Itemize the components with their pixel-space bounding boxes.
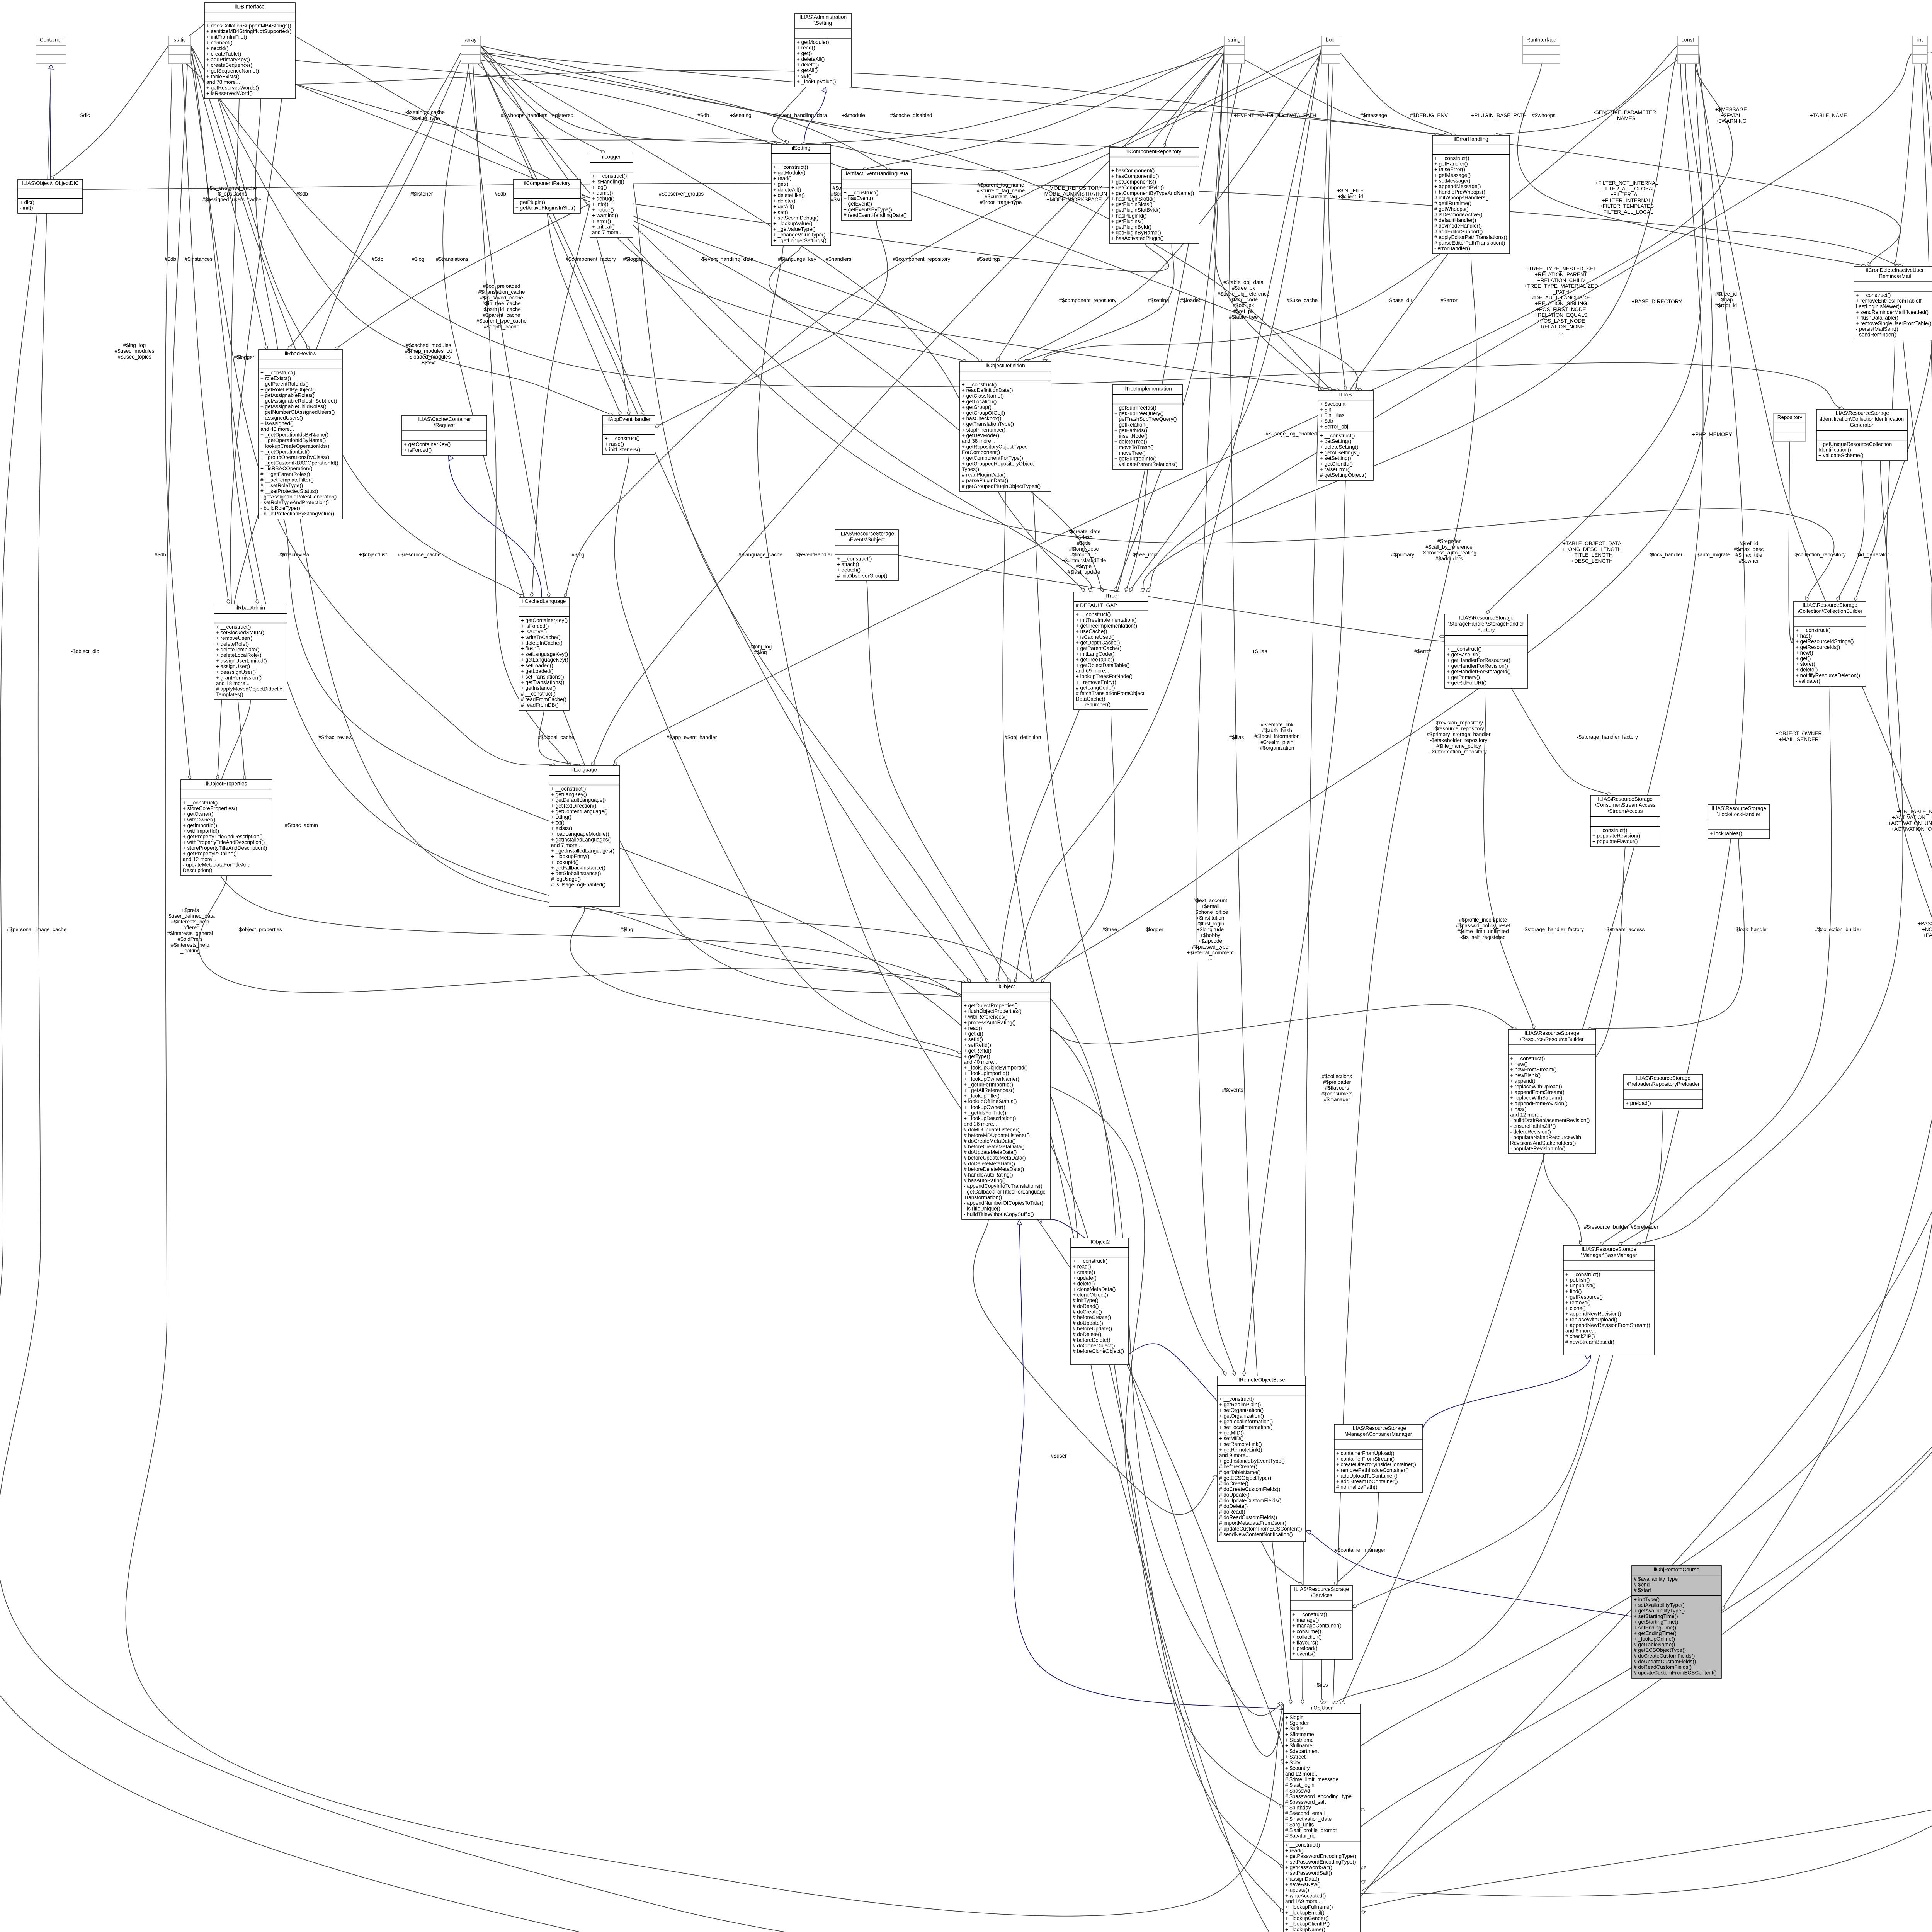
svg-text:#$parent_cache: #$parent_cache — [483, 312, 520, 318]
svg-text:+OBJECT_OWNER: +OBJECT_OWNER — [1776, 731, 1822, 736]
svg-text:+ getSubtreeInfo(): + getSubtreeInfo() — [1114, 456, 1156, 461]
svg-text:ilRbacAdmin: ilRbacAdmin — [236, 605, 265, 611]
svg-text:+ $ini: + $ini — [1320, 407, 1333, 413]
svg-text:+ create(): + create() — [1073, 1269, 1095, 1275]
svg-text:+ getOrganization(): + getOrganization() — [1219, 1413, 1264, 1419]
svg-text:# $avatar_rid: # $avatar_rid — [1285, 1833, 1316, 1839]
svg-text:\StreamAccess: \StreamAccess — [1608, 808, 1643, 814]
svg-text:Identification(): Identification() — [1818, 447, 1851, 453]
svg-text:+ tableExists(): + tableExists() — [206, 73, 240, 79]
svg-text:+ _lookupGender(): + _lookupGender() — [1285, 1915, 1329, 1921]
svg-text:+ isForced(): + isForced() — [404, 447, 432, 453]
svg-text:- ensurePathInZIP(): - ensurePathInZIP() — [1510, 1123, 1556, 1129]
svg-text:# doUpdateCustomFields(): # doUpdateCustomFields() — [1634, 1658, 1696, 1664]
svg-text:+ find(): + find() — [1565, 1288, 1582, 1294]
svg-text:#$language_cache: #$language_cache — [738, 552, 782, 558]
svg-text:+ setTranslations(): + setTranslations() — [521, 674, 564, 680]
svg-text:+ getGroupedRepositoryObject: + getGroupedRepositoryObject — [962, 461, 1034, 466]
svg-text:- appendCopyInfoToTranslations: - appendCopyInfoToTranslations() — [964, 1183, 1043, 1189]
svg-text:string: string — [1228, 37, 1240, 43]
svg-text:+MODE_ADMINISTRATION: +MODE_ADMINISTRATION — [1041, 191, 1107, 197]
svg-text:+ getHandler(): + getHandler() — [1434, 161, 1468, 167]
svg-text:+ getMID(): + getMID() — [1219, 1430, 1244, 1436]
svg-text:#$log: #$log — [571, 552, 584, 558]
svg-text:+ getRealmPlain(): + getRealmPlain() — [1219, 1402, 1261, 1408]
svg-text:+ _lookupFullname(): + _lookupFullname() — [1285, 1904, 1333, 1910]
svg-text:+ attach(): + attach() — [837, 561, 859, 567]
svg-text:+ __construct(): + __construct() — [551, 786, 586, 792]
svg-text:+ getImportId(): + getImportId() — [183, 822, 217, 828]
svg-text:# readFromCache(): # readFromCache() — [521, 696, 566, 702]
svg-text:#$resource_cache: #$resource_cache — [398, 552, 440, 558]
svg-text:# getECSObjectType(): # getECSObjectType() — [1219, 1475, 1271, 1481]
svg-text:+ set(): + set() — [773, 209, 788, 215]
svg-text:#$interests_help: #$interests_help — [171, 942, 209, 948]
svg-text:#$realm_plain: #$realm_plain — [1261, 739, 1294, 745]
svg-text:+ removeEntriesFromTableIf: + removeEntriesFromTableIf — [1856, 298, 1922, 304]
svg-text:+ initTreeImplementation(): + initTreeImplementation() — [1076, 617, 1136, 623]
svg-text:+ __construct(): + __construct() — [1219, 1396, 1254, 1402]
svg-text:+ deleteLike(): + deleteLike() — [773, 192, 805, 198]
svg-text:#$eventHandler: #$eventHandler — [795, 552, 832, 558]
svg-text:and 169 more...: and 169 more... — [1285, 1898, 1322, 1904]
svg-text:+$user_defined_data: +$user_defined_data — [165, 913, 215, 919]
svg-text:+ getAssignableRolesInSubtree(: + getAssignableRolesInSubtree() — [260, 398, 337, 404]
svg-text:+ moveTree(): + moveTree() — [1114, 450, 1146, 456]
svg-text:and 38 more...: and 38 more... — [962, 438, 995, 444]
svg-text:+ getPathIds(): + getPathIds() — [1114, 427, 1147, 433]
svg-text:+ getSetting(): + getSetting() — [1320, 439, 1351, 444]
svg-text:+ appendMessage(): + appendMessage() — [1434, 184, 1481, 189]
svg-text:ilObject2: ilObject2 — [1090, 1239, 1110, 1245]
svg-text:+ doesCollationSupportMB4Strin: + doesCollationSupportMB4Strings() — [206, 23, 291, 29]
svg-text:#$user: #$user — [1051, 1453, 1067, 1459]
svg-text:ilErrorHandling: ilErrorHandling — [1454, 136, 1488, 142]
svg-text:+ __construct(): + __construct() — [1796, 628, 1830, 633]
svg-text:+ getDevMode(): + getDevMode() — [962, 432, 999, 438]
svg-text:_offered: _offered — [180, 925, 199, 930]
svg-text:-$path_id_cache: -$path_id_cache — [482, 306, 521, 312]
svg-text:-$gap: -$gap — [1719, 297, 1733, 303]
svg-text:#$rbac_review: #$rbac_review — [318, 735, 352, 740]
svg-text:+ getHandlerForRevision(): + getHandlerForRevision() — [1447, 663, 1508, 669]
svg-text:+ __construct(): + __construct() — [260, 370, 295, 376]
svg-text:+ getGroup(): + getGroup() — [962, 404, 992, 410]
svg-text:+ removeSingleUserFromTable(): + removeSingleUserFromTable() — [1856, 321, 1931, 327]
svg-text:#$db: #$db — [165, 256, 176, 262]
svg-text:\Manager\ContainerManager: \Manager\ContainerManager — [1345, 1431, 1412, 1437]
svg-text:# doDeleteMetaData(): # doDeleteMetaData() — [964, 1161, 1015, 1167]
svg-text:+ update(): + update() — [1073, 1275, 1097, 1281]
svg-text:+ __construct(): + __construct() — [773, 164, 808, 170]
svg-text:+ getTextDirection(): + getTextDirection() — [551, 803, 596, 809]
svg-text:ILIAS\ResourceStorage: ILIAS\ResourceStorage — [1803, 602, 1857, 608]
svg-text:+ writeAccepted(): + writeAccepted() — [1285, 1893, 1326, 1899]
svg-text:ilDBInterface: ilDBInterface — [235, 4, 264, 10]
svg-text:# DEFAULT_GAP: # DEFAULT_GAP — [1076, 602, 1117, 608]
svg-text:+ containerFromUpload(): + containerFromUpload() — [1336, 1451, 1394, 1456]
svg-text:ReminderMail: ReminderMail — [1879, 273, 1911, 279]
svg-text:#$owner: #$owner — [1739, 558, 1759, 564]
svg-text:+ withReferences(): + withReferences() — [964, 1014, 1008, 1020]
svg-text:+ getHandlerForResource(): + getHandlerForResource() — [1447, 657, 1510, 663]
svg-text:+ getOwner(): + getOwner() — [183, 811, 213, 817]
svg-text:# beforeMDUpdateListener(): # beforeMDUpdateListener() — [964, 1133, 1030, 1138]
svg-text:#$first_login: #$first_login — [1196, 921, 1225, 927]
svg-text:-$lock_handler: -$lock_handler — [1734, 927, 1769, 932]
svg-text:Types(): Types() — [962, 466, 979, 472]
svg-text:+ newBlank(): + newBlank() — [1510, 1072, 1541, 1078]
svg-text:+ getInstance(): + getInstance() — [521, 685, 556, 691]
svg-text:+ getResourceIdStrings(): + getResourceIdStrings() — [1796, 639, 1854, 645]
svg-text:LastLoginIsNewer(): LastLoginIsNewer() — [1856, 304, 1901, 310]
svg-text:+ $account: + $account — [1320, 401, 1346, 407]
svg-text:# logUsage(): # logUsage() — [551, 876, 581, 882]
svg-text:+ getEndingTime(): + getEndingTime() — [1634, 1630, 1677, 1636]
svg-text:+ sanitizeMB4StringIfNotSuppor: + sanitizeMB4StringIfNotSupported() — [206, 29, 291, 34]
svg-text:#$create_date: #$create_date — [1067, 529, 1100, 534]
svg-text:- errorHandler(): - errorHandler() — [1434, 246, 1470, 252]
svg-text:+ _getIdsForTitle(): + _getIdsForTitle() — [964, 1110, 1006, 1116]
svg-text:-$information_repository: -$information_repository — [1430, 749, 1487, 755]
svg-text:# doUpdateCustomFields(): # doUpdateCustomFields() — [1219, 1498, 1281, 1503]
svg-text:and 9 more...: and 9 more... — [1219, 1452, 1250, 1458]
svg-text:#$container_manager: #$container_manager — [1335, 1547, 1386, 1553]
svg-text:#$events: #$events — [1222, 1087, 1243, 1093]
svg-text:+ getInstalledLanguages(): + getInstalledLanguages() — [551, 837, 612, 842]
svg-text:# beforeCloneObject(): # beforeCloneObject() — [1073, 1349, 1124, 1354]
svg-text:+ read(): + read() — [1285, 1848, 1304, 1854]
svg-text:# updateCustomFromECSContent(): # updateCustomFromECSContent() — [1634, 1670, 1717, 1676]
svg-text:ilTree: ilTree — [1104, 593, 1117, 599]
svg-text:+ getPlugins(): + getPlugins() — [1111, 218, 1144, 224]
svg-text:+ stopInheritance(): + stopInheritance() — [962, 427, 1005, 433]
svg-text:ILIAS\Administration: ILIAS\Administration — [799, 14, 847, 20]
svg-text:#$use_cache: #$use_cache — [1287, 298, 1318, 303]
svg-text:+ log(): + log() — [592, 184, 607, 190]
svg-text:# doCreateCustomFields(): # doCreateCustomFields() — [1219, 1486, 1280, 1492]
svg-text:+ _lookupValue(): + _lookupValue() — [797, 79, 836, 85]
svg-text:+ __construct(): + __construct() — [1565, 1272, 1600, 1277]
svg-text:ilLanguage: ilLanguage — [571, 767, 597, 773]
svg-text:RevisionsAndStakeholders(): RevisionsAndStakeholders() — [1510, 1140, 1576, 1146]
svg-text:+ getContentLanguage(): + getContentLanguage() — [551, 808, 608, 814]
svg-text:# __construct(): # __construct() — [521, 691, 556, 697]
svg-text:+MODE_REPOSITORY: +MODE_REPOSITORY — [1046, 185, 1102, 191]
svg-text:-$settings_cache: -$settings_cache — [405, 109, 445, 115]
svg-text:+ _lookupDescription(): + _lookupDescription() — [964, 1116, 1016, 1121]
svg-text:# getSettingObject(): # getSettingObject() — [1320, 472, 1366, 478]
svg-text:#$obj_definition: #$obj_definition — [1005, 735, 1041, 740]
svg-text:#$consumers: #$consumers — [1321, 1091, 1352, 1097]
svg-text:+ events(): + events() — [1292, 1651, 1315, 1657]
svg-text:+ cloneObject(): + cloneObject() — [1073, 1292, 1108, 1298]
svg-text:# applyEditorPathTranslations(: # applyEditorPathTranslations() — [1434, 234, 1507, 240]
svg-text:-$event_handling_data: -$event_handling_data — [700, 256, 753, 262]
svg-text:#$instances: #$instances — [185, 256, 213, 262]
svg-text:#$used_modules: #$used_modules — [115, 348, 155, 354]
svg-text:+ $street: + $street — [1285, 1754, 1306, 1760]
svg-text:Generator: Generator — [1850, 422, 1874, 428]
svg-text:-$tree_impl: -$tree_impl — [1131, 552, 1158, 558]
svg-text:#$root_trans_type: #$root_trans_type — [980, 199, 1022, 205]
svg-text:Transformation(): Transformation() — [964, 1194, 1002, 1200]
svg-text:+ store(): + store() — [1796, 661, 1815, 667]
svg-text:-$stream_access: -$stream_access — [1605, 927, 1645, 932]
svg-text:+MAIL_SENDER: +MAIL_SENDER — [1779, 736, 1818, 742]
svg-text:array: array — [465, 37, 477, 43]
svg-text:#$register: #$register — [1437, 538, 1461, 544]
svg-text:Container: Container — [40, 37, 63, 43]
svg-text:# getGroupedPluginObjectTypes(: # getGroupedPluginObjectTypes() — [962, 483, 1041, 489]
svg-text:+ getRidForURI(): + getRidForURI() — [1447, 680, 1486, 686]
svg-text:+ __construct(): + __construct() — [1292, 1612, 1327, 1617]
svg-text:-$process_auto_reating: -$process_auto_reating — [1422, 550, 1476, 556]
svg-text:#$type: #$type — [1076, 563, 1092, 569]
svg-text:+ getPasswordSalt(): + getPasswordSalt() — [1285, 1865, 1332, 1871]
svg-text:+ preload(): + preload() — [1292, 1645, 1318, 1651]
svg-text:ilObjUser: ilObjUser — [1311, 1705, 1333, 1711]
svg-text:+$WARNING: +$WARNING — [1716, 118, 1747, 124]
svg-text:+ new(): + new() — [1510, 1061, 1527, 1067]
svg-text:# beforeCreate(): # beforeCreate() — [1073, 1315, 1111, 1320]
svg-text:#$whoops: #$whoops — [1532, 112, 1556, 118]
svg-text:# doCreate(): # doCreate() — [1219, 1481, 1248, 1486]
svg-text:and 6 more...: and 6 more... — [1565, 1328, 1596, 1334]
svg-text:#$db: #$db — [372, 256, 383, 262]
svg-text:+ appendNewRevision(): + appendNewRevision() — [1565, 1311, 1621, 1317]
svg-text:+ __construct(): + __construct() — [844, 190, 878, 196]
svg-text:+ getLocation(): + getLocation() — [962, 399, 997, 405]
svg-text:ILIAS\ResourceStorage: ILIAS\ResourceStorage — [1459, 615, 1514, 621]
svg-text:+$phone_office: +$phone_office — [1192, 909, 1228, 915]
svg-text:+ getLocalInformation(): + getLocalInformation() — [1219, 1418, 1273, 1424]
svg-text:#$remote_link: #$remote_link — [1261, 722, 1294, 728]
svg-text:ilObjRemoteCourse: ilObjRemoteCourse — [1654, 1567, 1699, 1573]
svg-text:+ critical(): + critical() — [592, 224, 615, 230]
svg-text:+ getUniqueResourceCollection: + getUniqueResourceCollection — [1818, 441, 1892, 447]
svg-text:and 12 more...: and 12 more... — [1510, 1112, 1544, 1118]
svg-text:+ _lookupValue(): + _lookupValue() — [773, 221, 812, 226]
svg-text:+ hasEvent(): + hasEvent() — [844, 196, 873, 201]
svg-text:+ _lookupTitle(): + _lookupTitle() — [964, 1093, 1000, 1099]
svg-text:+ nextId(): + nextId() — [206, 45, 228, 51]
svg-text:ILIAS\Cache\Container: ILIAS\Cache\Container — [418, 417, 471, 422]
svg-text:+ $utitle: + $utitle — [1285, 1726, 1304, 1731]
svg-text:+ __construct(): + __construct() — [1076, 612, 1111, 617]
svg-text:+ get(): + get() — [797, 51, 812, 56]
svg-text:+ delete(): + delete() — [773, 198, 795, 204]
svg-text:#$log: #$log — [412, 256, 424, 262]
svg-text:+ getClientId(): + getClientId() — [1320, 461, 1353, 467]
svg-text:- buildProtectionByStringValue: - buildProtectionByStringValue() — [260, 511, 334, 517]
svg-text:# $password_encoding_type: # $password_encoding_type — [1285, 1793, 1352, 1799]
svg-text:+$client_id: +$client_id — [1338, 194, 1363, 199]
svg-text:+ has(): + has() — [1510, 1106, 1526, 1112]
svg-text:# beforeCreateMetaData(): # beforeCreateMetaData() — [964, 1144, 1025, 1150]
svg-text:# getLangCode(): # getLangCode() — [1076, 685, 1115, 690]
svg-text:# doUpdateMetaData(): # doUpdateMetaData() — [964, 1150, 1017, 1155]
svg-text:+ setId(): + setId() — [964, 1037, 983, 1043]
svg-text:+ setRemoteLink(): + setRemoteLink() — [1219, 1441, 1262, 1447]
svg-text:+ getLanguageKey(): + getLanguageKey() — [521, 657, 568, 663]
svg-text:+FILTER_NOT_INTERNAL: +FILTER_NOT_INTERNAL — [1595, 180, 1658, 186]
svg-text:+ preload(): + preload() — [1626, 1100, 1651, 1106]
svg-text:+ getPlugin(): + getPlugin() — [515, 199, 545, 205]
svg-text:#$root_id: #$root_id — [1715, 303, 1737, 308]
svg-text:+ assignData(): + assignData() — [1285, 1876, 1319, 1882]
svg-text:+ populateRevision(): + populateRevision() — [1592, 833, 1640, 839]
svg-text:+ delete(): + delete() — [1796, 667, 1818, 673]
svg-text:+ _getIdForImportId(): + _getIdForImportId() — [964, 1082, 1013, 1087]
svg-text:#$interests_help: #$interests_help — [171, 919, 209, 925]
svg-text:+TREE_TYPE_MATERIALIZED: +TREE_TYPE_MATERIALIZED — [1524, 283, 1598, 289]
svg-text:+ addStreamToContainer(): + addStreamToContainer() — [1336, 1479, 1398, 1485]
svg-text:+ read(): + read() — [964, 1025, 982, 1031]
svg-text:-$lock_handler: -$lock_handler — [1648, 552, 1683, 558]
svg-text:+ getReservedWords(): + getReservedWords() — [206, 85, 259, 91]
svg-text:#$profile_incomplete: #$profile_incomplete — [1459, 917, 1507, 923]
svg-text:#$app_event_handler: #$app_event_handler — [667, 735, 717, 740]
svg-text:+ get(): + get() — [1796, 656, 1811, 662]
svg-text:+ setLoaded(): + setLoaded() — [521, 663, 553, 668]
svg-text:- setRoleTypeAndProtection(): - setRoleTypeAndProtection() — [260, 500, 329, 505]
svg-text:#$collections: #$collections — [1322, 1073, 1352, 1079]
svg-text:+$FATAL: +$FATAL — [1721, 112, 1742, 118]
svg-text:+ getParentCache(): + getParentCache() — [1076, 645, 1121, 651]
svg-text:+RELATION_EQUALS: +RELATION_EQUALS — [1535, 312, 1588, 318]
svg-text:+ __construct(): + __construct() — [1592, 827, 1627, 833]
svg-text:# __setRoleType(): # __setRoleType() — [260, 483, 303, 488]
svg-text:+ _lookupOwner(): + _lookupOwner() — [964, 1104, 1005, 1110]
svg-text:+ _lookupName(): + _lookupName() — [1285, 1927, 1325, 1932]
svg-text:#$in_tree_cache: #$in_tree_cache — [482, 301, 521, 306]
svg-text:#$component_repository: #$component_repository — [1059, 298, 1117, 303]
svg-text:+ $login: + $login — [1285, 1714, 1304, 1720]
svg-text:- init(): - init() — [20, 205, 33, 211]
svg-text:\Manager\BaseManager: \Manager\BaseManager — [1581, 1252, 1637, 1258]
svg-text:+BASE_DIRECTORY: +BASE_DIRECTORY — [1632, 299, 1682, 304]
svg-text:#$observer_groups: #$observer_groups — [659, 191, 704, 197]
svg-text:+$setting: +$setting — [730, 112, 751, 118]
svg-text:+ createSequence(): + createSequence() — [206, 62, 252, 68]
svg-text:# addEditorSupport(): # addEditorSupport() — [1434, 229, 1483, 235]
svg-text:#$message: #$message — [1360, 112, 1387, 118]
svg-text:#$flavours: #$flavours — [1325, 1085, 1349, 1091]
svg-text:+ replaceWithUpload(): + replaceWithUpload() — [1510, 1084, 1562, 1090]
svg-text:+ hasActivatedPlugin(): + hasActivatedPlugin() — [1111, 235, 1163, 241]
svg-text:+ cloneMetaData(): + cloneMetaData() — [1073, 1286, 1116, 1292]
svg-text:+ _getAllReferences(): + _getAllReferences() — [964, 1087, 1014, 1093]
svg-text:and 43 more...: and 43 more... — [260, 426, 294, 432]
svg-text:#$rbac_admin: #$rbac_admin — [285, 822, 318, 828]
svg-text:+TREE_TYPE_NESTED_SET: +TREE_TYPE_NESTED_SET — [1526, 266, 1597, 272]
svg-text:#$rbacreview: #$rbacreview — [278, 552, 310, 558]
svg-text:\Resource\ResourceBuilder: \Resource\ResourceBuilder — [1520, 1036, 1584, 1042]
svg-text:+ getAssignableChildRoles(): + getAssignableChildRoles() — [260, 404, 327, 410]
svg-text:+ txtlng(): + txtlng() — [551, 814, 571, 820]
svg-text:+ _getOperationIdsByName(): + _getOperationIdsByName() — [260, 432, 328, 438]
svg-text:- buildDraftReplacementRevisio: - buildDraftReplacementRevision() — [1510, 1117, 1590, 1123]
svg-text:...: ... — [1559, 330, 1563, 335]
svg-text:+ isHandling(): + isHandling() — [592, 179, 624, 185]
svg-text:+ notice(): + notice() — [592, 207, 614, 213]
svg-text:ilLogger: ilLogger — [602, 154, 621, 160]
svg-text:+ __construct(): + __construct() — [183, 800, 218, 806]
svg-text:+ setPasswordEncodingType(): + setPasswordEncodingType() — [1285, 1859, 1356, 1865]
svg-text:+ getModule(): + getModule() — [797, 39, 829, 45]
svg-text:+ __construct(): + __construct() — [837, 556, 872, 562]
svg-text:+ _getOperationList(): + _getOperationList() — [260, 449, 310, 454]
svg-text:+RELATION_PARENT: +RELATION_PARENT — [1535, 272, 1587, 277]
svg-text:# initObserverGroup(): # initObserverGroup() — [837, 573, 888, 578]
svg-text:# importMetadataFromJson(): # importMetadataFromJson() — [1219, 1520, 1286, 1526]
svg-text:+ getPluginSlotById(): + getPluginSlotById() — [1111, 207, 1160, 213]
svg-text:+ raise(): + raise() — [605, 441, 624, 447]
svg-text:+ __construct(): + __construct() — [1510, 1056, 1545, 1061]
svg-text:+ getRefId(): + getRefId() — [964, 1048, 992, 1054]
svg-text:+ initType(): + initType() — [1634, 1597, 1660, 1602]
svg-text:+ deleteAll(): + deleteAll() — [797, 56, 825, 62]
svg-text:+PHP_MEMORY: +PHP_MEMORY — [1692, 432, 1732, 437]
svg-text:+ setAvailabilityType(): + setAvailabilityType() — [1634, 1602, 1684, 1608]
svg-text:+ processAutoRating(): + processAutoRating() — [964, 1020, 1016, 1026]
svg-text:ilSetting: ilSetting — [792, 145, 810, 151]
svg-text:int: int — [1917, 37, 1923, 43]
svg-text:+ getContainerKey(): + getContainerKey() — [404, 442, 451, 447]
svg-text:#$db: #$db — [296, 191, 308, 197]
svg-text:+ setMID(): + setMID() — [1219, 1435, 1243, 1441]
svg-text:+ __construct(): + __construct() — [962, 382, 997, 388]
svg-text:# $last_profile_prompt: # $last_profile_prompt — [1285, 1827, 1337, 1833]
svg-text:+ initLangCode(): + initLangCode() — [1076, 651, 1114, 657]
svg-text:+ getPluginByName(): + getPluginByName() — [1111, 230, 1161, 236]
svg-text:+ _getInstalledLanguages(): + _getInstalledLanguages() — [551, 848, 614, 854]
svg-text:+ detach(): + detach() — [837, 567, 861, 573]
svg-text:+ $db: + $db — [1320, 418, 1333, 424]
svg-text:+ getPropertyTitleAndDescripti: + getPropertyTitleAndDescription() — [183, 834, 263, 840]
svg-text:+ roleExists(): + roleExists() — [260, 376, 291, 381]
svg-text:+ getClassName(): + getClassName() — [962, 393, 1004, 399]
svg-text:# beforeDelete(): # beforeDelete() — [1073, 1337, 1111, 1343]
svg-text:+ getEventsByType(): + getEventsByType() — [844, 207, 892, 213]
svg-text:+ deleteInCache(): + deleteInCache() — [521, 640, 563, 646]
svg-text:-$dic: -$dic — [78, 112, 90, 118]
svg-text:+ warning(): + warning() — [592, 213, 618, 218]
svg-text:+ setLocalInformation(): + setLocalInformation() — [1219, 1424, 1272, 1430]
svg-text:+ dump(): + dump() — [592, 190, 613, 196]
svg-text:+ _getLongerSettings(): + _getLongerSettings() — [773, 238, 827, 243]
svg-text:+ debug(): + debug() — [592, 196, 614, 201]
svg-text:- persistMailSent(): - persistMailSent() — [1856, 326, 1898, 332]
svg-text:+$untranslatedTitle: +$untranslatedTitle — [1062, 558, 1106, 563]
svg-text:+ __construct(): + __construct() — [1434, 155, 1469, 161]
svg-text:+ _getOperationIdByName(): + _getOperationIdByName() — [260, 437, 326, 443]
svg-text:# doCreateMetaData(): # doCreateMetaData() — [964, 1138, 1015, 1144]
svg-text:+ loadLanguageModule(): + loadLanguageModule() — [551, 831, 609, 837]
svg-text:# devmodeHandler(): # devmodeHandler() — [1434, 223, 1482, 229]
svg-text:+ __construct(): + __construct() — [216, 624, 251, 630]
svg-text:ilObject: ilObject — [997, 984, 1015, 990]
svg-text:+ hasComponent(): + hasComponent() — [1111, 168, 1155, 173]
svg-text:+ writeToCache(): + writeToCache() — [521, 634, 560, 640]
svg-text:ilObjectDefinition: ilObjectDefinition — [986, 363, 1025, 369]
svg-text:# $password_salt: # $password_salt — [1285, 1799, 1326, 1805]
svg-text:+ _lookupOwnerName(): + _lookupOwnerName() — [964, 1076, 1019, 1082]
svg-text:#$passwd_policy_reset: #$passwd_policy_reset — [1456, 923, 1510, 929]
svg-text:+ deleteTree(): + deleteTree() — [1114, 439, 1147, 445]
svg-text:+ _removeEntry(): + _removeEntry() — [1076, 679, 1116, 685]
